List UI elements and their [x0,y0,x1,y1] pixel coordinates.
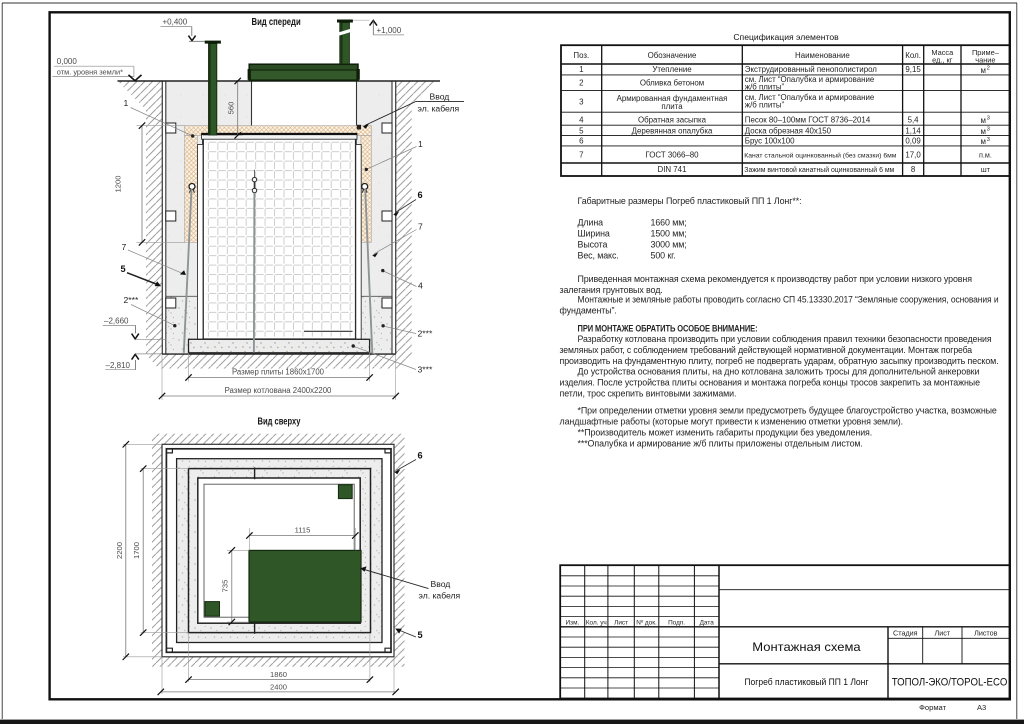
svg-text:Канат стальной оцинкованный (б: Канат стальной оцинкованный (без смазки)… [744,152,896,160]
svg-text:Разработку котлована производи: Разработку котлована производить при усл… [578,334,992,344]
svg-text:шт: шт [981,165,991,174]
svg-text:6: 6 [418,451,423,461]
svg-text:Монтажная схема: Монтажная схема [752,641,861,654]
svg-text:1: 1 [418,139,423,149]
svg-text:Размер котлована 2400х2200: Размер котлована 2400х2200 [225,386,332,395]
svg-text:производить на фундаментную пл: производить на фундаментную плиту, погре… [560,356,999,366]
svg-text:1700: 1700 [132,542,141,559]
svg-text:Изм.: Изм. [566,620,580,627]
svg-text:Подп.: Подп. [668,620,685,627]
svg-text:Стадия: Стадия [893,628,918,637]
svg-text:ГОСТ 3066–80: ГОСТ 3066–80 [645,151,699,160]
svg-text:1,14: 1,14 [905,126,921,135]
svg-text:+1,000: +1,000 [377,26,402,35]
svg-text:6: 6 [579,137,584,146]
svg-text:Nº док.: Nº док. [636,620,657,627]
svg-text:4: 4 [418,281,423,291]
svg-text:Дата: Дата [700,620,715,627]
svg-text:Лист: Лист [614,620,628,627]
svg-text:Листов: Листов [974,628,998,637]
svg-text:3***: 3*** [418,365,433,375]
svg-text:Зажим винтовой канатный оцинко: Зажим винтовой канатный оцинкованный 6 м… [744,166,894,174]
svg-text:изделия. После устройства плит: изделия. После устройства плиты основани… [560,378,981,388]
svg-text:500 кг.: 500 кг. [651,250,676,260]
svg-text:Обозначение: Обозначение [648,51,697,60]
svg-text:3: 3 [579,98,584,107]
svg-text:1115: 1115 [295,526,311,535]
svg-text:Лист: Лист [934,628,950,637]
svg-text:залегания грунтовых вод.: залегания грунтовых вод. [560,285,663,295]
svg-text:3000 мм;: 3000 мм; [651,239,687,249]
svg-text:Высота: Высота [578,239,608,249]
svg-text:ТОПОЛ-ЭКО/TOPOL-ECO: ТОПОЛ-ЭКО/TOPOL-ECO [892,677,1008,689]
svg-text:А3: А3 [977,703,986,712]
svg-text:2400: 2400 [270,682,287,691]
svg-text:Наименование: Наименование [795,51,850,60]
svg-text:Спецификация элементов: Спецификация элементов [733,32,839,42]
svg-text:***Опалубка и армирование ж/б: ***Опалубка и армирование ж/б плиты прил… [578,439,863,449]
svg-text:5: 5 [121,264,126,274]
svg-text:Вид спереди: Вид спереди [252,17,301,28]
svg-text:1860: 1860 [270,670,287,679]
svg-text:Приведенная монтажная схема ре: Приведенная монтажная схема рекомендуетс… [578,274,973,284]
svg-text:1500 мм;: 1500 мм; [651,228,687,238]
svg-text:фундаменты”.: фундаменты”. [560,305,617,315]
svg-text:Песок 80–100мм ГОСТ 8736–2014: Песок 80–100мм ГОСТ 8736–2014 [745,115,871,124]
svg-text:1: 1 [124,98,129,108]
svg-text:1660 мм;: 1660 мм; [651,217,687,227]
svg-text:петли, трос скрепить винтовыми: петли, трос скрепить винтовыми зажимами. [560,389,737,399]
svg-text:1200: 1200 [114,176,123,193]
svg-text:DIN 741: DIN 741 [658,165,687,174]
svg-text:Вес, макс.: Вес, макс. [578,250,619,260]
svg-text:735: 735 [221,580,230,593]
svg-text:Обливка бетоном: Обливка бетоном [640,79,704,88]
svg-text:9,15: 9,15 [905,65,921,74]
svg-text:0,09: 0,09 [905,137,921,146]
svg-text:эл. кабеля: эл. кабеля [419,591,461,601]
svg-text:3: 3 [987,127,990,133]
svg-text:5: 5 [418,630,423,640]
svg-text:+0,400: +0,400 [163,18,188,27]
svg-text:Кол.: Кол. [905,51,921,60]
svg-text:Монтажные и земляные работы пр: Монтажные и земляные работы проводить со… [578,294,999,304]
svg-text:Габаритные размеры Погреб плас: Габаритные размеры Погреб пластиковый ПП… [578,196,802,206]
svg-text:Формат: Формат [919,703,946,712]
svg-text:Кол. уч: Кол. уч [586,620,607,627]
svg-text:чание: чание [975,56,995,65]
svg-text:Вид сверху: Вид сверху [258,417,301,428]
svg-text:Утепление: Утепление [652,65,692,74]
svg-text:2***: 2*** [124,295,139,305]
svg-text:3: 3 [987,116,990,122]
svg-text:Ширина: Ширина [578,228,610,238]
svg-text:5,4: 5,4 [908,115,920,124]
svg-text:Поз.: Поз. [573,51,589,60]
svg-text:7: 7 [579,151,583,160]
svg-text:м: м [980,137,985,146]
svg-text:1: 1 [579,65,583,74]
svg-text:5: 5 [579,126,584,135]
svg-text:–2,660: –2,660 [104,317,129,326]
svg-text:ж/б плиты”: ж/б плиты” [745,83,785,92]
svg-text:эл. кабеля: эл. кабеля [418,103,460,113]
svg-text:м: м [980,116,985,125]
svg-text:Брус 100х100: Брус 100х100 [745,137,795,146]
svg-text:7: 7 [418,222,423,232]
svg-text:Ввод: Ввод [431,579,451,589]
svg-text:*При определении отметки уровн: *При определении отметки уровня земли пр… [578,406,997,416]
svg-text:п.м.: п.м. [979,151,992,160]
svg-text:плита: плита [661,102,683,111]
svg-text:м: м [980,127,985,136]
svg-text:м: м [980,66,985,75]
svg-text:ед., кг: ед., кг [932,56,953,65]
svg-text:Ввод: Ввод [430,92,450,102]
svg-text:Экструдированный пенополистиро: Экструдированный пенополистирол [745,65,877,74]
svg-text:Погреб пластиковый ПП 1 Лонг: Погреб пластиковый ПП 1 Лонг [744,677,869,687]
svg-text:До устройства основания плиты,: До устройства основания плиты, на дно ко… [578,367,980,377]
svg-text:ж/б плиты”: ж/б плиты” [745,101,785,110]
svg-text:3: 3 [987,137,990,143]
svg-text:Размер плиты 1860х1700: Размер плиты 1860х1700 [232,368,325,377]
svg-text:–2,810: –2,810 [106,361,131,370]
svg-text:2: 2 [579,79,583,88]
svg-text:2: 2 [987,65,990,71]
svg-text:2***: 2*** [418,329,433,339]
svg-text:17,0: 17,0 [905,151,921,160]
svg-text:4: 4 [579,115,584,124]
svg-text:отм. уровня земли*: отм. уровня земли* [57,68,123,77]
svg-text:0,000: 0,000 [57,57,78,66]
svg-text:8: 8 [911,165,916,174]
svg-text:2200: 2200 [115,542,124,559]
svg-text:Обратная засыпка: Обратная засыпка [638,115,707,124]
svg-text:Длина: Длина [578,217,604,227]
svg-text:Деревянная опалубка: Деревянная опалубка [632,126,713,135]
svg-text:7: 7 [122,242,127,252]
svg-text:560: 560 [227,102,236,115]
svg-text:**Производитель может изменить: **Производитель может изменить габариты … [578,428,873,438]
svg-text:ландшафтные работы (которые мо: ландшафтные работы (которые могут привес… [560,417,904,427]
svg-text:земляных работ, с соблюдением: земляных работ, с соблюдением требований… [560,345,973,355]
svg-text:Доска обрезная 40х150: Доска обрезная 40х150 [745,126,832,135]
svg-text:6: 6 [418,190,423,200]
svg-text:ПРИ МОНТАЖЕ ОБРАТИТЬ ОСОБОЕ ВН: ПРИ МОНТАЖЕ ОБРАТИТЬ ОСОБОЕ ВНИМАНИЕ: [578,324,758,334]
